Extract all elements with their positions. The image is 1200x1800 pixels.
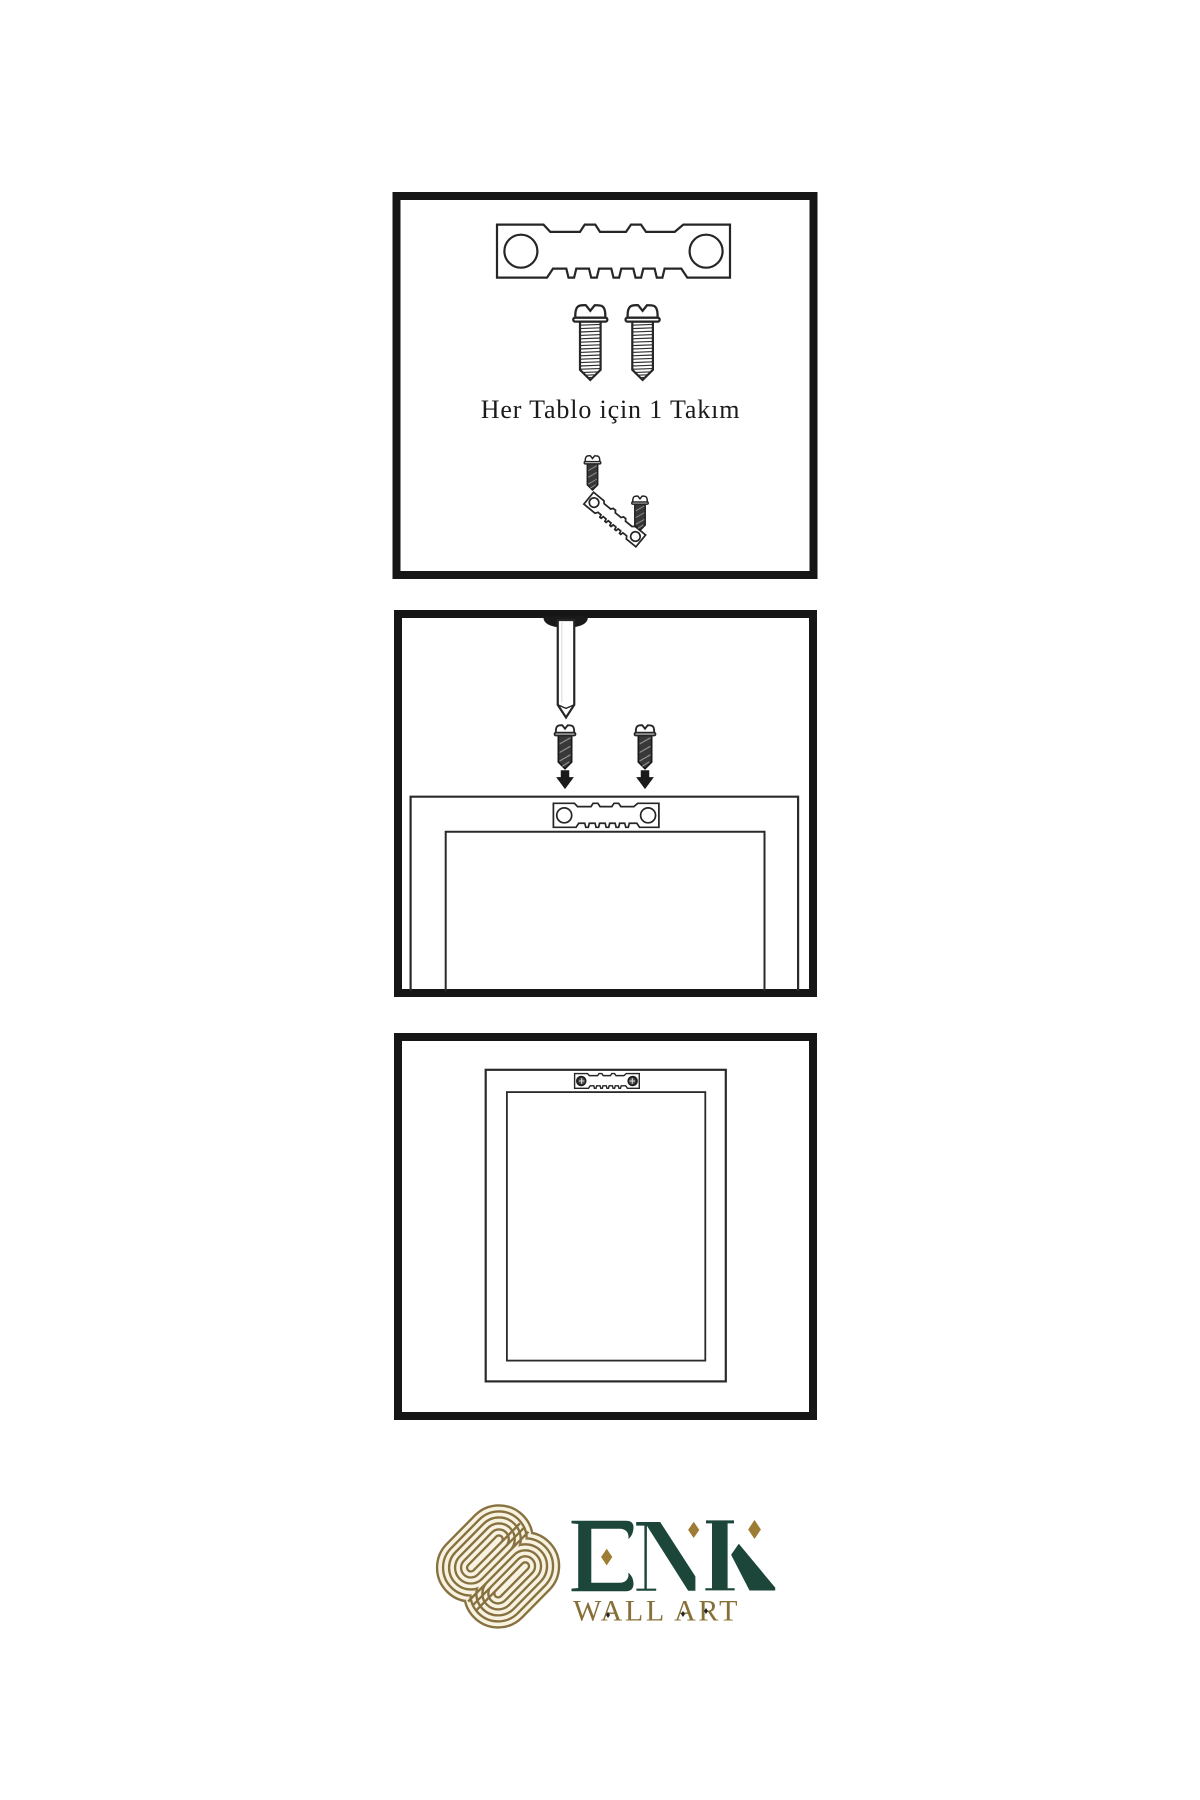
svg-text:WALL ART: WALL ART — [573, 1595, 740, 1628]
svg-text:Her Tablo için 1 Takım: Her Tablo için 1 Takım — [481, 395, 741, 424]
